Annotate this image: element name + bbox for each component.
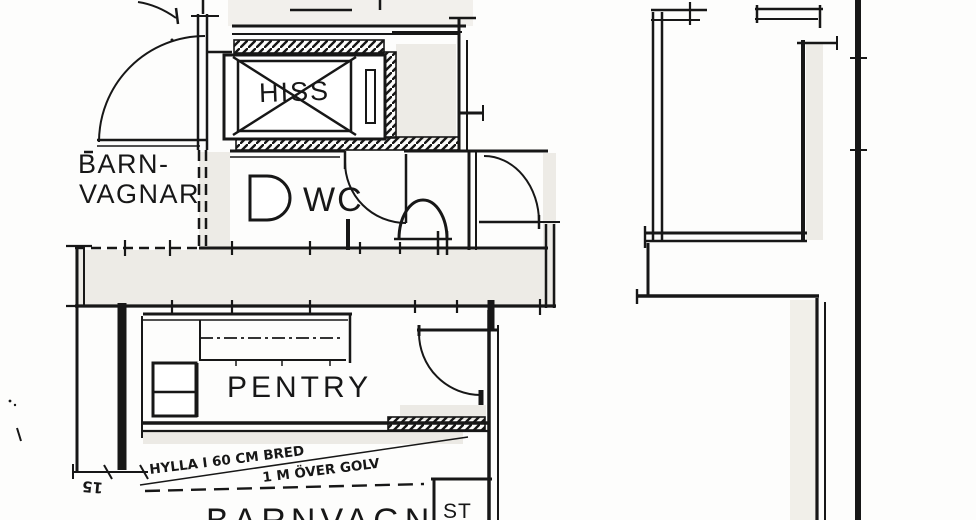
shade-bottom-right [790, 300, 816, 520]
pentry-cabinet [153, 363, 196, 416]
hall-door-arc [484, 156, 539, 222]
right-room-walls [637, 0, 867, 520]
shade-elevator-lobby [396, 44, 456, 140]
door-swing-arc-large [99, 36, 205, 142]
room-label-st: ST [443, 500, 472, 520]
room-label-barnvagnar-line1: BARN- [78, 149, 170, 179]
partial-arc-top [138, 2, 176, 18]
shade-top-smudge [228, 0, 473, 26]
floor-plan-canvas: HISS BARN- VAGNAR WC PENTRY BARNVAGN ST … [0, 0, 976, 520]
pentry-door-arc [419, 333, 481, 395]
dashed-line [145, 484, 424, 491]
room-label-barnvagn: BARNVAGN [206, 502, 434, 520]
elevator-door-leaf [366, 70, 375, 123]
floor-plan-sheet: HISS BARN- VAGNAR WC PENTRY BARNVAGN ST … [0, 0, 976, 520]
room-label-pentry: PENTRY [227, 371, 372, 404]
room-label-hiss: HISS [258, 76, 330, 108]
room-label-wc: WC [303, 181, 364, 219]
room-label-barnvagnar-line2: VAGNAR [79, 179, 200, 209]
scan-shading [75, 0, 823, 520]
shade-wall-strip [199, 152, 230, 250]
dimension-text: 15 [81, 477, 103, 497]
shade-right-room [806, 44, 823, 240]
hatch-above-elevator [234, 40, 384, 53]
toilet-fixture [250, 176, 290, 220]
shade-corridor [75, 250, 556, 307]
top-left-walls [97, 0, 232, 150]
